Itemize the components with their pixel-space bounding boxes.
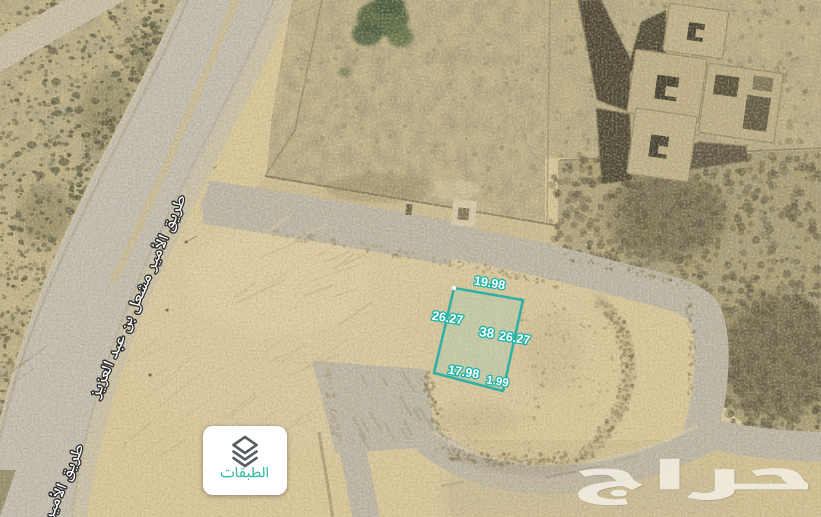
svg-text:38: 38 — [478, 324, 496, 341]
